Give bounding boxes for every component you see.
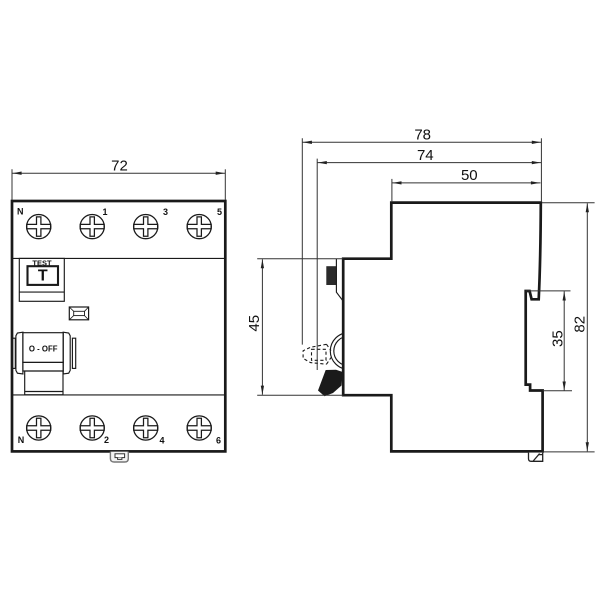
svg-text:35: 35 [549,330,566,347]
svg-text:1: 1 [102,207,107,217]
svg-text:50: 50 [461,167,478,184]
svg-text:O - OFF: O - OFF [29,344,58,353]
svg-text:5: 5 [217,207,222,217]
svg-text:6: 6 [216,436,221,446]
svg-text:N: N [18,435,25,445]
svg-text:82: 82 [571,316,588,333]
svg-text:72: 72 [111,158,128,175]
svg-text:45: 45 [246,315,263,332]
svg-text:N: N [17,207,24,217]
svg-text:74: 74 [417,147,434,164]
svg-text:2: 2 [104,435,109,445]
svg-text:78: 78 [414,126,431,143]
svg-text:T: T [38,268,48,285]
svg-text:3: 3 [163,207,168,217]
svg-text:4: 4 [159,436,164,446]
